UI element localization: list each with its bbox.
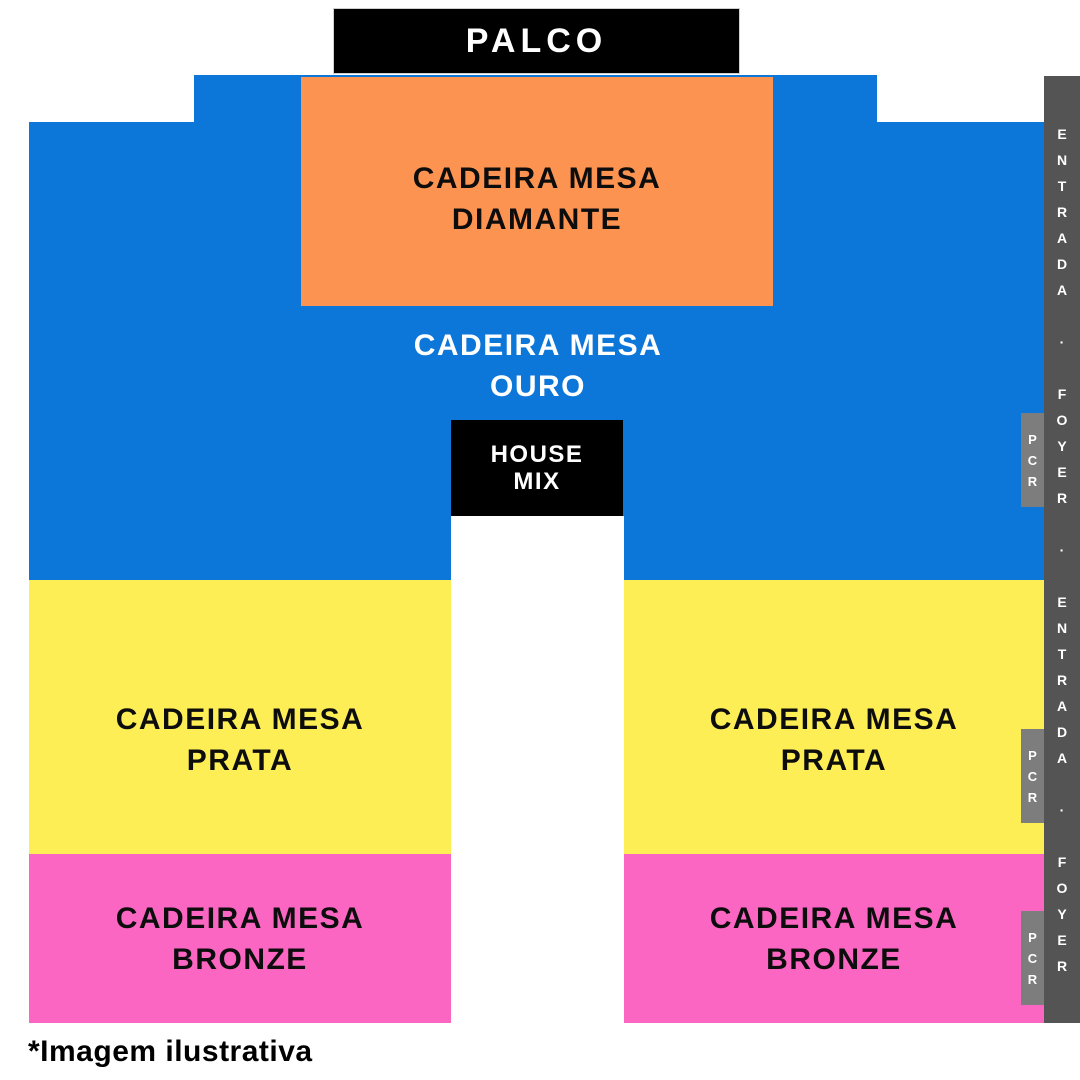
prata-left-line2: PRATA [187,740,293,781]
footnote-text: *Imagem ilustrativa [28,1035,313,1069]
bronze-right-line1: CADEIRA MESA [710,898,959,939]
bronze-left-line1: CADEIRA MESA [116,898,365,939]
house-mix-booth: HOUSE MIX [451,420,623,516]
diamante-label-line1: CADEIRA MESA [413,158,662,199]
prata-right-line1: CADEIRA MESA [710,699,959,740]
ouro-section-label: CADEIRA MESA OURO [301,323,775,409]
ouro-label-line2: OURO [490,366,586,407]
bronze-section-left: CADEIRA MESA BRONZE [29,854,451,1023]
venue-seating-map: PALCO CADEIRA MESA DIAMANTE CADEIRA MESA… [0,0,1080,1080]
bronze-right-line2: BRONZE [766,939,902,980]
prata-section-left: CADEIRA MESA PRATA [29,580,451,854]
center-aisle [451,516,624,580]
pcr-box-2: PCR [1021,729,1044,823]
prata-section-right: CADEIRA MESA PRATA [624,580,1044,854]
diamante-section: CADEIRA MESA DIAMANTE [301,77,773,306]
prata-left-line1: CADEIRA MESA [116,699,365,740]
stage-label: PALCO [466,22,607,61]
entrance-foyer-bar: ENTRADA·FOYER·ENTRADA·FOYER [1044,76,1080,1023]
bronze-left-line2: BRONZE [172,939,308,980]
house-mix-line2: MIX [513,468,560,495]
prata-right-line2: PRATA [781,740,887,781]
house-mix-line1: HOUSE [491,441,584,468]
bronze-section-right: CADEIRA MESA BRONZE [624,854,1044,1023]
pcr-box-3: PCR [1021,911,1044,1005]
ouro-label-line1: CADEIRA MESA [414,325,663,366]
diamante-label-line2: DIAMANTE [452,199,622,240]
pcr-box-1: PCR [1021,413,1044,507]
stage-block: PALCO [333,8,740,74]
